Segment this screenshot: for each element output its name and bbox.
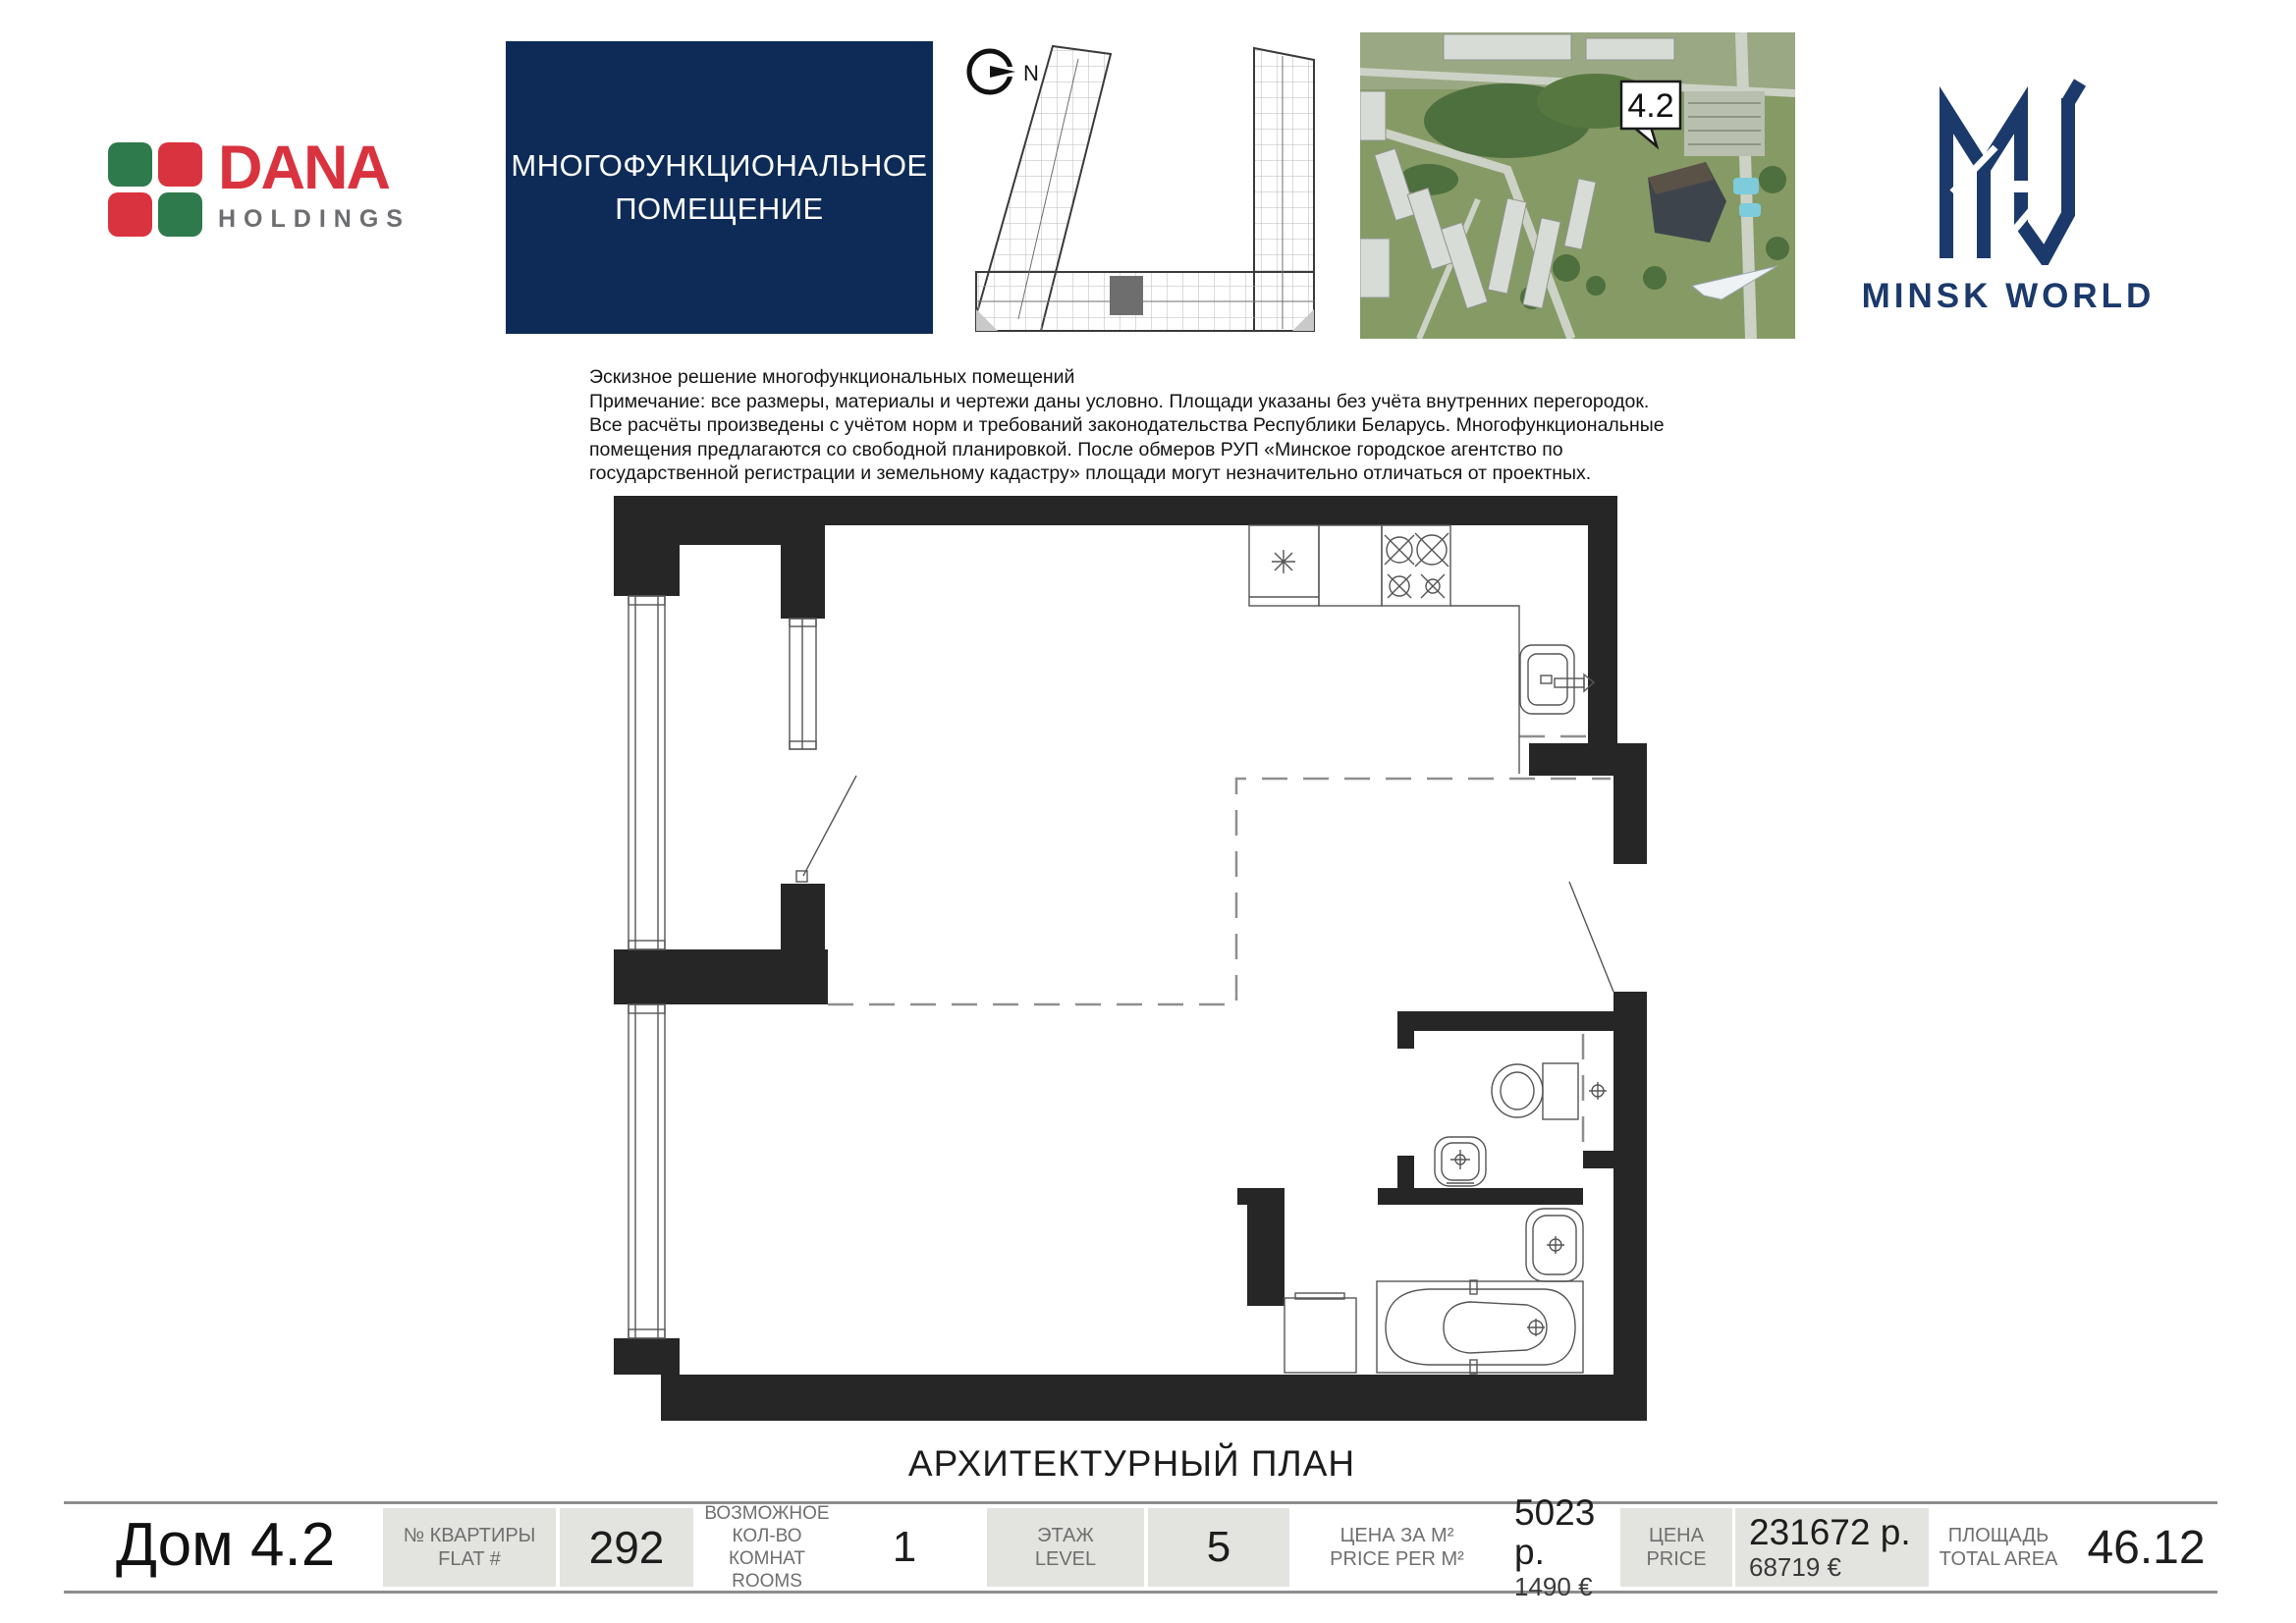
footer-top-rule: [64, 1501, 2217, 1504]
logo-square-green-br: [158, 192, 202, 237]
area-label-ru: ПЛОЩАДЬ: [1948, 1524, 2049, 1547]
price-label-cell: ЦЕНА PRICE: [1620, 1508, 1732, 1587]
stove-icon: [1382, 525, 1450, 606]
rooms-label-ru-1: ВОЗМОЖНОЕ: [704, 1502, 829, 1525]
area-value: 46.12: [2087, 1521, 2205, 1575]
price-per-m2-byn: 5023 р.: [1514, 1493, 1632, 1572]
area-label-en: TOTAL AREA: [1940, 1547, 2058, 1571]
rooms-value-cell: 1: [841, 1508, 968, 1587]
building-outline: [976, 46, 1314, 331]
house-title: Дом 4.2: [116, 1510, 335, 1580]
callout-label: 4.2: [1627, 87, 1673, 125]
north-arrow-icon: N: [969, 51, 1039, 92]
disclaimer-note: Эскизное решение многофункциональных пом…: [589, 365, 1768, 486]
window-loggia-partition: [790, 619, 816, 749]
price-eur: 68719 €: [1749, 1552, 1841, 1582]
toilet-icon: [1492, 1063, 1607, 1119]
dana-logo-squares-icon: [108, 142, 204, 239]
building-level-plan-thumbnail: N: [962, 34, 1336, 339]
floor-plan-drawing: [614, 496, 1650, 1424]
flat-label-en: FLAT #: [438, 1547, 501, 1571]
free-plan-dashed-lines: [828, 736, 1611, 1151]
aerial-parking: [1684, 91, 1765, 156]
note-line-5: государственной регистрации и земельному…: [589, 461, 1768, 486]
kitchen-wash-sink-icon: [1520, 645, 1594, 714]
level-label-cell: ЭТАЖ LEVEL: [987, 1508, 1144, 1587]
brochure-page: DANA HOLDINGS МНОГОФУНКЦИОНАЛЬНОЕ ПОМЕЩЕ…: [0, 0, 2296, 1623]
highlighted-unit: [1110, 276, 1143, 315]
minsk-world-wordmark: MINSK WORLD: [1836, 277, 2180, 316]
minsk-world-logo: MINSK WORLD: [1836, 59, 2180, 324]
price-per-m2-eur: 1490 €: [1514, 1572, 1593, 1601]
footer-bottom-rule: [64, 1591, 2217, 1594]
kitchen-counter: [1249, 525, 1519, 774]
price-per-m2-value-cell: 5023 р. 1490 €: [1501, 1508, 1632, 1587]
price-byn: 231672 р.: [1749, 1513, 1911, 1552]
level-value: 5: [1207, 1523, 1230, 1572]
note-line-1: Эскизное решение многофункциональных пом…: [589, 365, 1768, 390]
flat-number-value: 292: [589, 1521, 665, 1574]
logo-square-red-tr: [158, 142, 202, 187]
note-line-3: Все расчёты произведены с учётом норм и …: [589, 413, 1768, 438]
area-label-cell: ПЛОЩАДЬ TOTAL AREA: [1925, 1508, 2072, 1587]
area-value-cell: 46.12: [2075, 1508, 2217, 1587]
price-label-ru: ЦЕНА: [1649, 1524, 1704, 1547]
price-per-m2-label-en: PRICE PER M²: [1330, 1547, 1464, 1571]
kitchen-sink-unit-icon: [1272, 550, 1295, 573]
dana-name: DANA: [218, 137, 410, 199]
dana-holdings-logo: DANA HOLDINGS: [108, 137, 462, 245]
mw-monogram-icon: [1925, 59, 2092, 265]
rooms-label-ru-2: КОЛ-ВО КОМНАТ: [695, 1525, 839, 1570]
rooms-label-en: ROOMS: [732, 1570, 802, 1593]
aerial-site-photo: 4.2: [1360, 32, 1795, 339]
dana-holdings-text: HOLDINGS: [218, 205, 410, 234]
bathroom-sink-icon: [1526, 1209, 1583, 1281]
wc-sink-icon: [1435, 1137, 1486, 1186]
rooms-value: 1: [893, 1523, 916, 1572]
flat-number-label-cell: № КВАРТИРЫ FLAT #: [383, 1508, 556, 1587]
window-left-lower: [629, 1004, 665, 1338]
washing-machine-icon: [1285, 1293, 1356, 1373]
north-label: N: [1023, 61, 1039, 85]
dana-wordmark: DANA HOLDINGS: [218, 137, 410, 234]
price-per-m2-label-cell: ЦЕНА ЗА М² PRICE PER M²: [1296, 1508, 1498, 1587]
unit-type-banner: МНОГОФУНКЦИОНАЛЬНОЕ ПОМЕЩЕНИЕ: [506, 41, 933, 334]
price-label-en: PRICE: [1646, 1547, 1706, 1571]
note-line-4: помещения предлагаются со свободной план…: [589, 438, 1768, 462]
flat-label-ru: № КВАРТИРЫ: [404, 1524, 536, 1547]
entrance-door-swing: [1569, 882, 1613, 992]
level-label-ru: ЭТАЖ: [1037, 1524, 1094, 1547]
level-value-cell: 5: [1148, 1508, 1289, 1587]
unit-type-line1: МНОГОФУНКЦИОНАЛЬНОЕ: [511, 144, 927, 188]
flat-number-value-cell: 292: [560, 1508, 693, 1587]
loggia-door-swing: [796, 776, 856, 882]
logo-square-red-bl: [108, 192, 152, 237]
price-per-m2-label-ru: ЦЕНА ЗА М²: [1340, 1524, 1454, 1547]
note-line-2: Примечание: все размеры, материалы и чер…: [589, 390, 1768, 414]
plan-caption: АРХИТЕКТУРНЫЙ ПЛАН: [614, 1443, 1650, 1485]
price-value-cell: 231672 р. 68719 €: [1735, 1508, 1929, 1587]
level-label-en: LEVEL: [1035, 1547, 1096, 1571]
window-left-upper: [629, 596, 665, 949]
bathtub-icon: [1377, 1280, 1583, 1374]
logo-square-green-tl: [108, 142, 152, 187]
rooms-label-cell: ВОЗМОЖНОЕ КОЛ-ВО КОМНАТ ROOMS: [695, 1508, 839, 1587]
unit-type-line2: ПОМЕЩЕНИЕ: [615, 188, 823, 231]
